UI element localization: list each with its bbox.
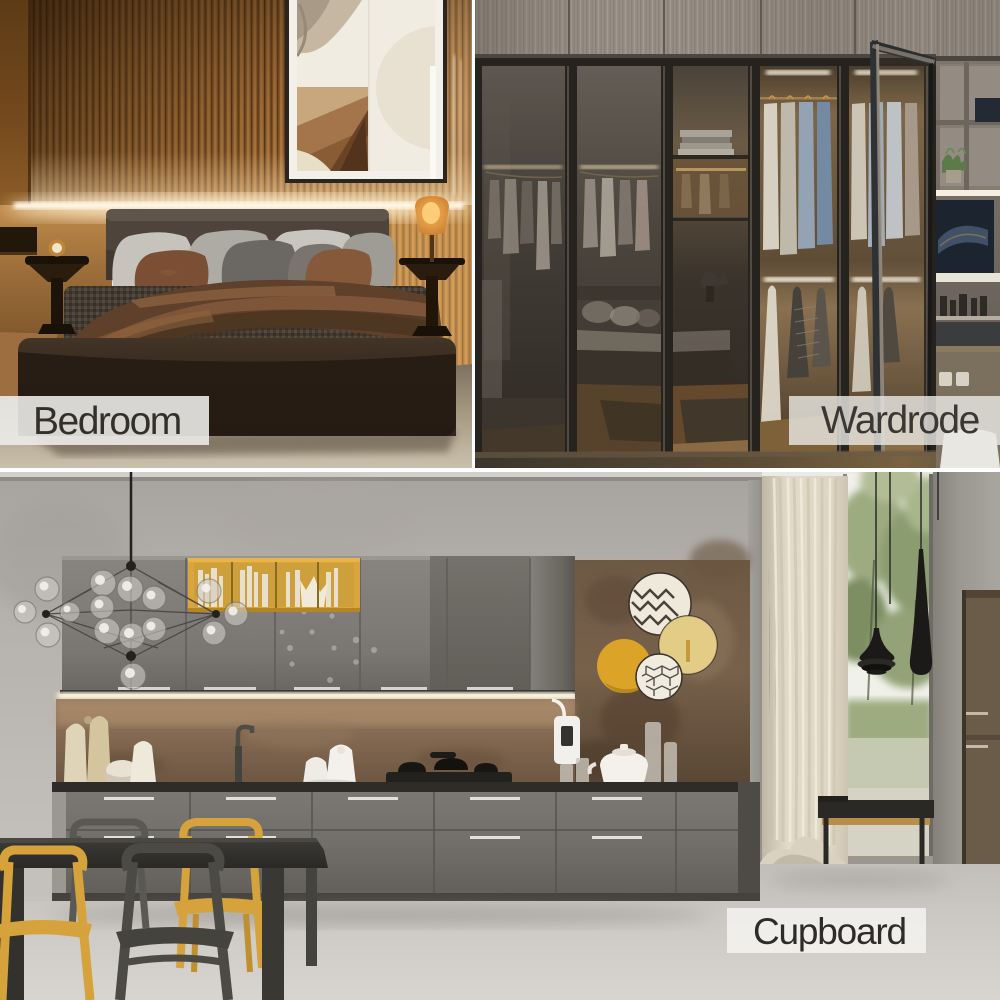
svg-text:Bedroom: Bedroom — [33, 400, 181, 443]
svg-text:Wardrode: Wardrode — [821, 399, 979, 442]
svg-text:Cupboard: Cupboard — [753, 911, 906, 952]
